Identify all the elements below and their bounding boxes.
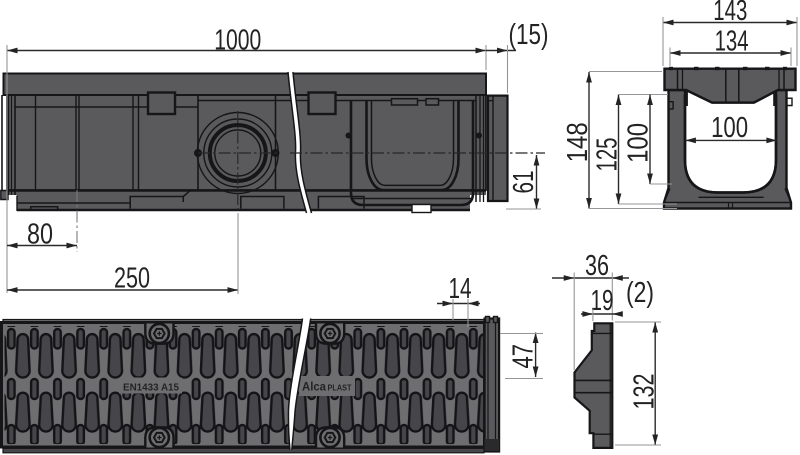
svg-text:(2): (2) [626,277,654,309]
svg-text:19: 19 [591,285,614,317]
svg-text:47: 47 [508,344,540,369]
svg-text:100: 100 [711,112,748,144]
svg-text:36: 36 [585,250,609,282]
svg-text:EN1433 A15: EN1433 A15 [123,382,179,394]
svg-text:1000: 1000 [214,25,261,57]
svg-text:(15): (15) [509,19,549,51]
svg-text:61: 61 [508,171,540,194]
svg-text:PLAST: PLAST [328,383,353,393]
svg-text:Alca: Alca [302,380,326,394]
